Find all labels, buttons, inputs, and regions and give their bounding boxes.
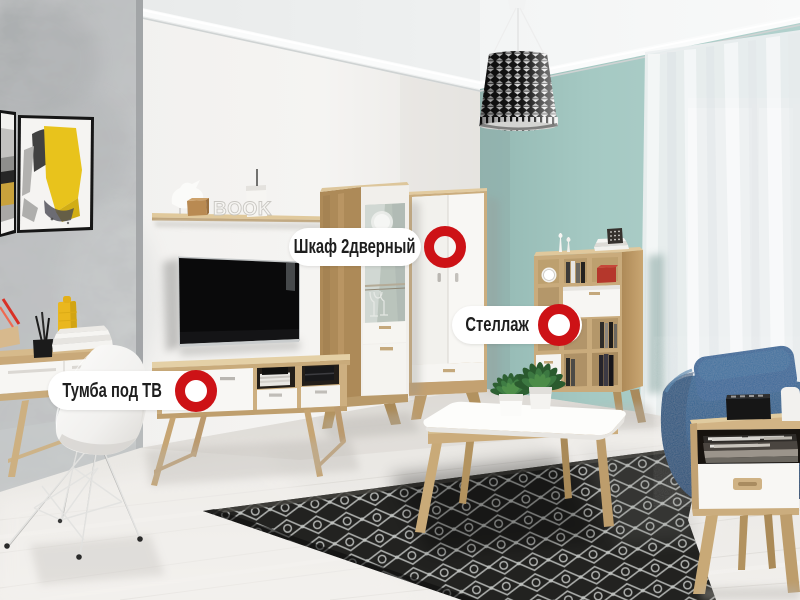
svg-text:BOOK: BOOK [213, 199, 272, 220]
